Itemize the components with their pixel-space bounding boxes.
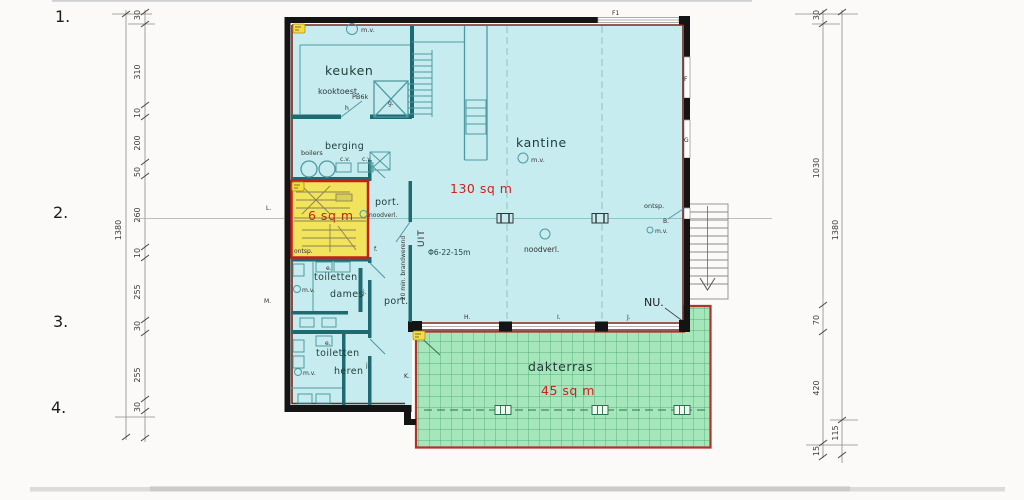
escape-stairwell: 6 sq m ontsp. [292, 181, 369, 258]
annotation-extinguisher: PB6k [352, 93, 369, 101]
area-label-kantine: 130 sq m [450, 181, 512, 196]
dim-left-9: 255 [133, 367, 142, 382]
dim-right-4: 15 [812, 446, 821, 456]
annotation-mv-kitchen: m.v. [361, 26, 375, 34]
sheet-number-1: 1. [55, 7, 70, 26]
dimension-chain-right: 30 1030 70 420 15 1380 115 [795, 9, 858, 463]
room-label-port-1: port. [375, 197, 400, 208]
dim-right-1: 1030 [812, 158, 821, 178]
dim-right-2: 70 [812, 315, 821, 325]
tag-door-e2: e. [325, 340, 331, 347]
dim-left-10: 30 [133, 402, 142, 412]
dim-left-1: 310 [133, 64, 142, 79]
dim-left-7: 255 [133, 284, 142, 299]
area-label-dakterras: 45 sq m [541, 383, 595, 398]
marker-icon [293, 24, 305, 33]
annotation-nu: NU. [644, 296, 664, 309]
tag-door-m: M. [264, 298, 271, 305]
dim-left-8: 30 [133, 321, 142, 331]
annotation-mv-heren: m.v. [303, 370, 316, 377]
label-boilers: boilers [301, 149, 323, 157]
dim-left-3: 200 [133, 135, 142, 150]
tag-window-g: G [684, 137, 689, 144]
annotation-exit: UIT [417, 229, 427, 247]
dim-right-total: 1380 [831, 220, 840, 240]
sheet-number-3: 3. [53, 312, 68, 331]
annotation-cv-1: c.v. [340, 156, 350, 163]
tag-door-h: h [345, 105, 349, 112]
annotation-ontsp-exit: ontsp. [644, 202, 664, 210]
tag-window-f: F [684, 76, 688, 83]
room-label-heren: heren [334, 366, 363, 377]
room-label-toiletten-d: toiletten [314, 272, 358, 283]
dim-left-2: 10 [133, 108, 142, 118]
area-label-stairwell: 6 sq m [308, 208, 354, 223]
column-symbol [592, 214, 608, 224]
dim-left-5: 260 [133, 207, 142, 222]
room-label-dakterras: dakterras [528, 359, 593, 374]
annotation-noodverl-corridor: noodverl. [369, 212, 397, 219]
tag-door-e1: e. [326, 265, 332, 272]
room-label-berging: berging [325, 141, 364, 152]
annotation-ontsp-stairwell: ontsp. [294, 248, 313, 255]
dim-right-3: 420 [812, 380, 821, 395]
tag-f1: F1 [612, 10, 619, 17]
tag-door-g: g. [388, 100, 394, 107]
exit-door-opening [684, 208, 690, 219]
room-label-toiletten-h: toiletten [316, 348, 360, 359]
marker-icon [413, 331, 425, 340]
annotation-mv-exit: m.v. [655, 228, 668, 235]
room-label-dames: dames [330, 289, 364, 300]
annotation-sprinkler: Φ6-22-15m [428, 248, 470, 257]
sheet-number-4: 4. [51, 398, 66, 417]
dim-left-0: 30 [133, 10, 142, 20]
sheet-number-2: 2. [53, 203, 68, 222]
marker-icon [292, 182, 304, 191]
dim-right-0: 30 [812, 10, 821, 20]
tag-window-j: J. [626, 314, 631, 321]
tag-door-j2: j. [365, 362, 370, 369]
annotation-mv-kantine: m.v. [531, 156, 545, 164]
dim-left-total: 1380 [114, 220, 123, 240]
tag-door-l: L. [266, 205, 271, 212]
annotation-cv-2: c.v. [362, 156, 372, 163]
tag-door-k: K. [404, 373, 410, 380]
floor-plan-drawing: 1. 2. 3. 4. 30 310 10 200 50 260 10 255 … [0, 0, 1024, 500]
room-label-kantine: kantine [516, 135, 567, 150]
annotation-noodverl-kantine: noodverl. [524, 245, 559, 254]
room-label-keuken: keuken [325, 63, 373, 78]
column-symbol [497, 214, 513, 224]
dimension-chain-left: 30 310 10 200 50 260 10 255 30 255 30 13… [112, 9, 155, 442]
dim-left-4: 50 [133, 167, 142, 177]
tag-window-i: I. [557, 314, 561, 321]
dim-left-6: 10 [133, 248, 142, 258]
dim-right-outer: 115 [831, 425, 840, 440]
floor-plan-sheet: 1. 2. 3. 4. 30 310 10 200 50 260 10 255 … [0, 0, 1024, 500]
annotation-fire-resistant: 20 min. brandwerend [400, 236, 407, 301]
tag-window-h: H. [464, 314, 470, 321]
tag-door-f: f. [374, 246, 378, 253]
sheet-numbers: 1. 2. 3. 4. [51, 7, 70, 417]
